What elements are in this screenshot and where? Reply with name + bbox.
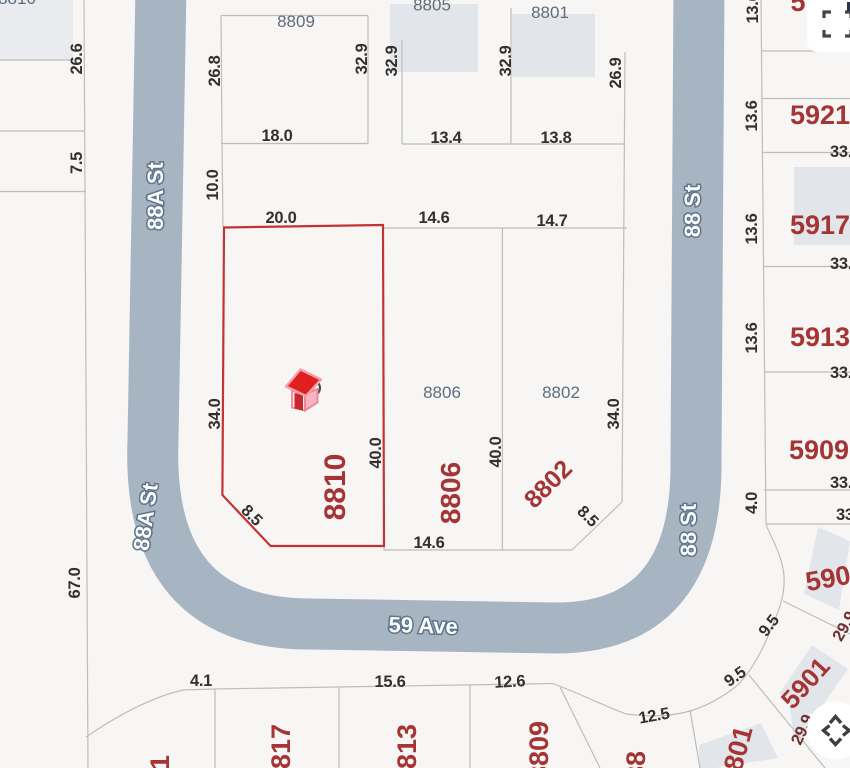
svg-text:4.1: 4.1 [190,672,212,690]
svg-text:32.9: 32.9 [497,45,515,76]
svg-text:33.5: 33.5 [830,143,850,161]
svg-text:10.0: 10.0 [204,169,222,200]
svg-text:26.8: 26.8 [206,55,224,86]
svg-text:8809: 8809 [524,721,554,768]
svg-text:8802: 8802 [542,383,580,402]
svg-text:26.6: 26.6 [68,43,86,74]
svg-text:88: 88 [621,751,651,768]
svg-text:33.5: 33.5 [830,364,850,382]
svg-text:34.0: 34.0 [605,398,623,429]
svg-text:8806: 8806 [423,383,461,402]
svg-text:5: 5 [790,0,805,17]
svg-text:8806: 8806 [435,462,466,524]
svg-text:18.0: 18.0 [262,127,293,145]
svg-text:8810: 8810 [0,0,36,8]
svg-text:13.8: 13.8 [541,129,572,147]
svg-text:14.7: 14.7 [537,212,568,230]
svg-text:88 St: 88 St [680,184,705,237]
svg-text:13.6: 13.6 [743,213,761,244]
svg-text:13.4: 13.4 [431,129,463,147]
svg-text:12.6: 12.6 [494,672,526,692]
svg-text:5921: 5921 [790,100,850,130]
svg-text:13.6: 13.6 [743,322,761,353]
svg-text:15.6: 15.6 [375,673,406,691]
svg-text:20.0: 20.0 [266,209,297,227]
svg-text:13.6: 13.6 [743,100,761,131]
svg-text:13.6: 13.6 [744,0,762,23]
svg-text:33.5: 33.5 [830,474,850,492]
svg-text:8821: 8821 [145,755,175,768]
svg-text:88A St: 88A St [143,162,168,230]
svg-text:67.0: 67.0 [66,567,84,598]
svg-text:8805: 8805 [413,0,451,15]
svg-text:8809: 8809 [277,12,315,31]
svg-text:8813: 8813 [392,724,422,768]
svg-text:5913: 5913 [790,322,850,352]
svg-text:26.9: 26.9 [607,57,625,88]
svg-text:8801: 8801 [531,3,569,22]
svg-text:7.5: 7.5 [68,152,86,174]
svg-text:8810: 8810 [319,454,352,521]
svg-text:8817: 8817 [266,724,296,768]
svg-text:32.9: 32.9 [353,43,371,74]
svg-text:5917: 5917 [790,210,850,240]
svg-text:88 St: 88 St [676,503,701,556]
svg-text:33.5: 33.5 [830,255,850,273]
svg-text:33: 33 [836,506,850,524]
svg-text:32.9: 32.9 [383,45,401,76]
svg-text:14.6: 14.6 [419,209,450,227]
svg-text:14.6: 14.6 [414,534,445,552]
svg-text:4.0: 4.0 [743,492,761,514]
svg-text:5909: 5909 [789,435,849,465]
svg-text:40.0: 40.0 [367,437,385,468]
svg-text:59 Ave: 59 Ave [388,612,458,639]
svg-text:34.0: 34.0 [206,398,224,429]
svg-text:40.0: 40.0 [487,436,505,467]
